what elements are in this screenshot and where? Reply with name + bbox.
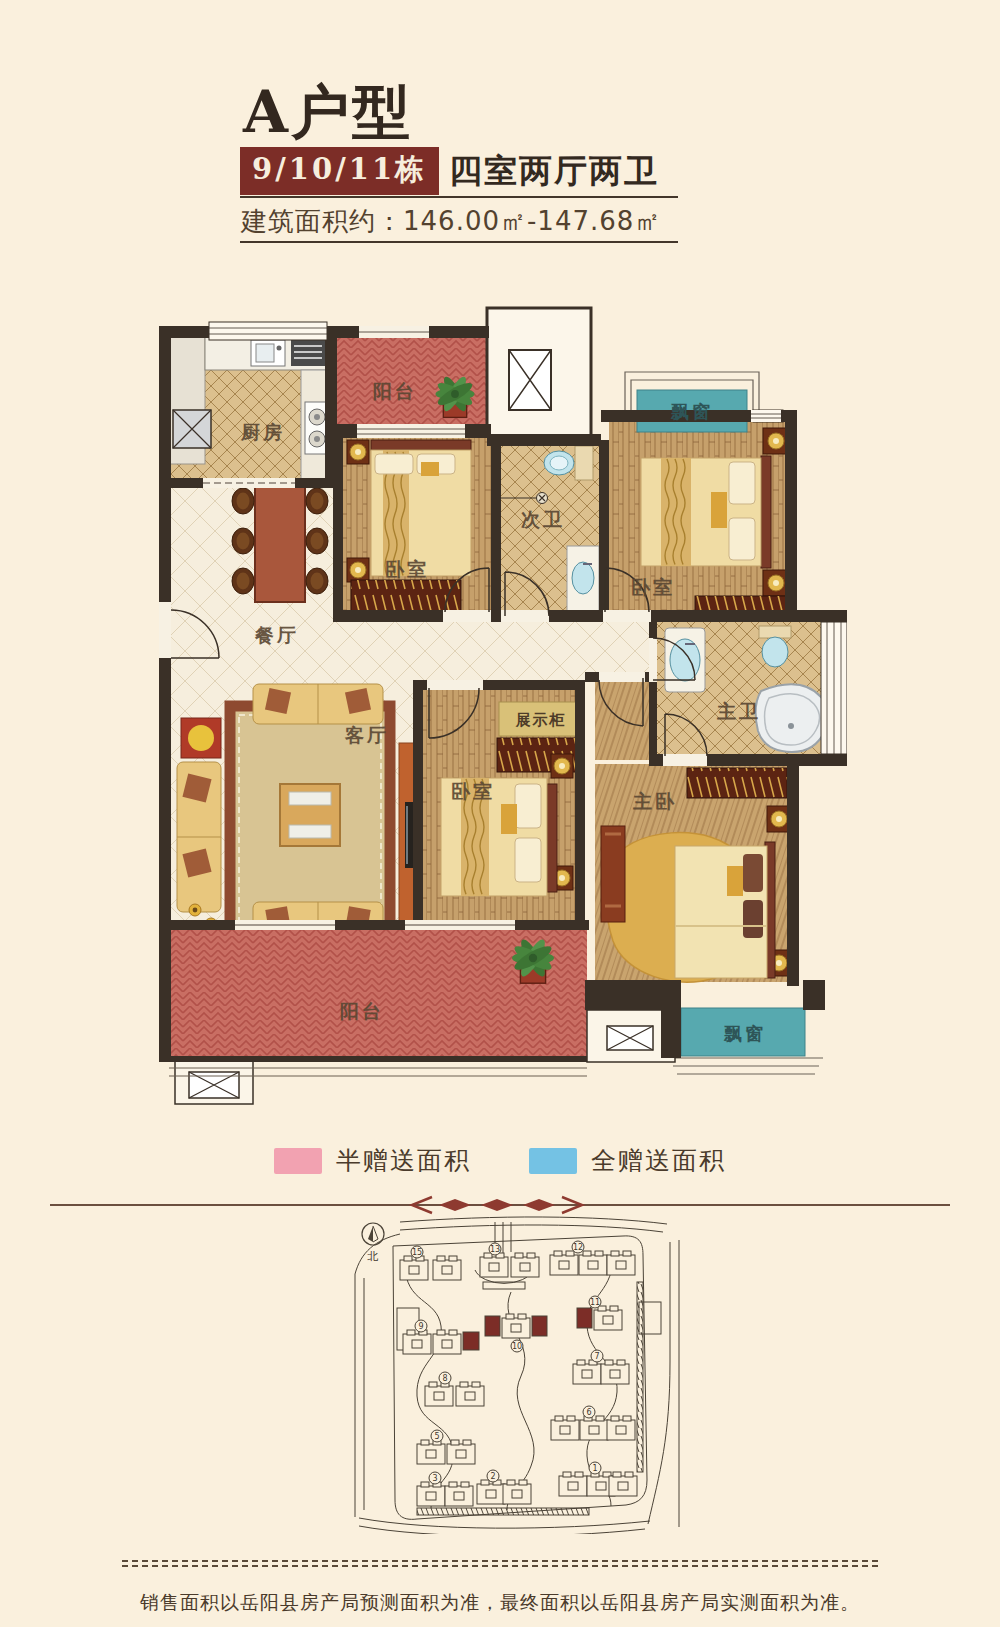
label-kitchen: 厨房 — [240, 421, 285, 443]
elevator-shaft — [487, 308, 591, 440]
label-balcony-bottom: 阳台 — [340, 1000, 384, 1022]
bldg-num-3: 3 — [432, 1474, 437, 1483]
north-label: 北 — [367, 1250, 379, 1263]
area-text: 建筑面积约：146.00㎡-147.68㎡ — [241, 204, 661, 239]
label-bath-master: 主卫 — [716, 700, 761, 722]
bldg-num-2: 2 — [490, 1472, 495, 1481]
bldg-num-7: 7 — [594, 1352, 599, 1361]
label-balcony-top: 阳台 — [373, 380, 417, 402]
balcony-bottom — [169, 928, 587, 1056]
legend-item-half-gift: 半赠送面积 — [274, 1144, 471, 1177]
dining-set — [232, 482, 328, 602]
label-bedroom-master: 主卧 — [632, 790, 677, 812]
ac-platform-left — [175, 1058, 253, 1104]
label-bay-top: 飘窗 — [670, 401, 713, 422]
label-bedroom-top-left: 卧室 — [385, 558, 429, 580]
bldg-num-10: 10 — [512, 1342, 522, 1351]
header-badge-row: 9/10/11栋 四室两厅两卫 — [240, 147, 659, 195]
building-badge: 9/10/11栋 — [240, 147, 439, 195]
bldg-num-12: 12 — [573, 1243, 583, 1252]
bath-master — [657, 622, 829, 756]
divider-top — [240, 196, 678, 198]
full-gift-swatch — [529, 1148, 577, 1174]
bldg-num-5: 5 — [434, 1432, 439, 1441]
bldg-num-6: 6 — [586, 1408, 591, 1417]
floorplan-image: 厨房 阳台 卧室 次卫 卧室 飘窗 餐厅 客厅 展示柜 卧室 主卫 主卧 阳台 … — [155, 306, 847, 1106]
balcony-top — [337, 332, 487, 424]
label-bedroom-top-right: 卧室 — [631, 576, 675, 598]
bldg-num-11: 11 — [590, 1298, 600, 1307]
page-title: A户型 — [243, 74, 413, 152]
label-bedroom-center: 卧室 — [451, 780, 495, 802]
legend-label-full-gift: 全赠送面积 — [591, 1144, 726, 1177]
legend: 半赠送面积 全赠送面积 — [0, 1144, 1000, 1177]
bldg-num-15: 15 — [412, 1248, 422, 1257]
north-arrow-icon: 北 — [362, 1223, 384, 1263]
divider-bottom — [240, 241, 678, 243]
label-dining: 餐厅 — [254, 624, 299, 646]
bldg-num-1: 1 — [592, 1464, 597, 1473]
layout-summary: 四室两厅两卫 — [449, 149, 659, 194]
legend-label-half-gift: 半赠送面积 — [336, 1144, 471, 1177]
bldg-num-13: 13 — [490, 1245, 500, 1254]
label-living: 客厅 — [344, 724, 389, 746]
bldg-num-9: 9 — [418, 1322, 423, 1331]
bldg-num-8: 8 — [442, 1374, 447, 1383]
footer-note: 销售面积以岳阳县房产局预测面积为准，最终面积以岳阳县房产局实测面积为准。 — [0, 1590, 1000, 1616]
bedroom-top-left — [343, 436, 491, 616]
siteplan-map: 15 13 12 9 10 11 8 7 5 6 3 2 1 — [345, 1212, 680, 1534]
label-bay-bottom: 飘窗 — [723, 1023, 766, 1044]
kitchen — [167, 332, 333, 482]
legend-item-full-gift: 全赠送面积 — [529, 1144, 726, 1177]
label-bath-secondary: 次卫 — [521, 508, 565, 530]
half-gift-swatch — [274, 1148, 322, 1174]
label-display-cabinet: 展示柜 — [515, 711, 567, 729]
footer-divider — [122, 1560, 878, 1567]
